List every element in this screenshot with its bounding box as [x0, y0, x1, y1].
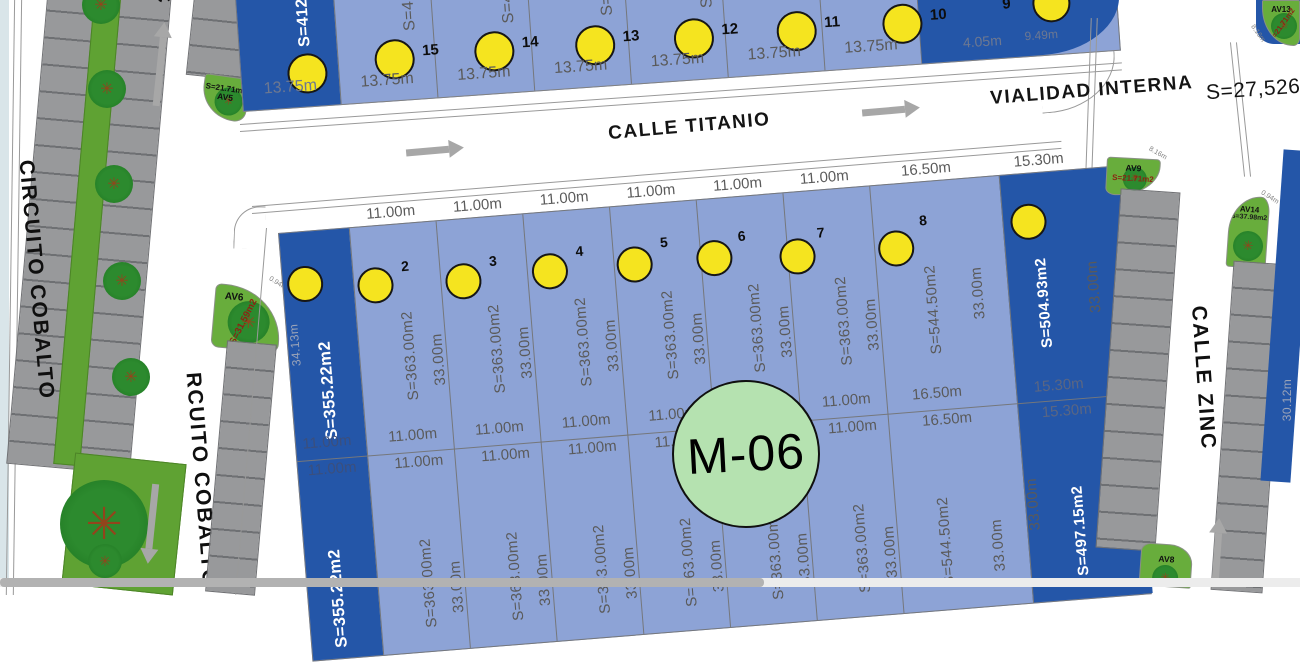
tree-icon: ✳	[88, 544, 122, 578]
lot-depth-label: 33.00m	[988, 518, 1009, 572]
arrow-right-icon	[405, 139, 464, 162]
vialidad-area-label: S=27,526	[1205, 75, 1300, 106]
mid-width-label: 11.00m	[551, 410, 622, 433]
lot-number: 15	[422, 41, 440, 59]
lot-width-label: 13.75m	[739, 42, 810, 65]
av8-label: AV8	[1141, 553, 1192, 566]
lot-area-label: S=363.00m2	[485, 304, 509, 395]
lot-area-label: S=363.00m2	[677, 517, 701, 608]
lot-number: 5	[659, 234, 668, 251]
lot-area-label: S=363.00m2	[590, 524, 614, 615]
lot-width-label: 13.75m	[835, 36, 906, 59]
lot-area-label: S=363.00m2	[503, 531, 527, 622]
lot-area-label: S=363.00m2	[398, 311, 422, 402]
lot9-edge-label: 9.49m	[1024, 27, 1058, 43]
lot-area-label: S=41	[399, 0, 420, 31]
lot-number: 14	[521, 33, 539, 51]
lot-width-label: 13.75m	[352, 69, 423, 92]
lot-area-label: S=	[598, 0, 617, 16]
lot-number: 13	[622, 27, 640, 45]
av9-area-label: S=21.71m2	[1107, 172, 1159, 184]
street-label-calle-titanio: CALLE TITANIO	[607, 109, 771, 145]
lot-area-label: S=363.00m2	[832, 276, 856, 367]
lot-depth-label: 33.00m	[967, 266, 988, 320]
lot-area-label: S=412	[293, 0, 314, 47]
lot-area-label: S	[698, 0, 717, 8]
block-badge-label: M-06	[686, 422, 807, 486]
horizontal-scrollbar-thumb[interactable]	[0, 578, 764, 587]
parking-strip-circuito-east	[205, 340, 277, 595]
lot-number: 8	[918, 212, 927, 229]
mid-width-label: 11.00m	[464, 417, 535, 440]
tree-icon: ✳	[112, 358, 150, 396]
plan-canvas[interactable]: { "streets": { "circuito_cobalto": "CIRC…	[0, 0, 1300, 587]
vertical-road-east-curb-b	[1236, 42, 1251, 176]
lot-number: 4	[575, 243, 584, 260]
lot-marker-icon	[531, 252, 570, 291]
mid-width-label: 16.50m	[901, 382, 972, 405]
green-area-av14: ✳ AV14 S=37.98m2	[1226, 195, 1271, 270]
lot-number: 7	[816, 224, 825, 241]
lot-width-label: 13.75m	[545, 56, 616, 79]
lot-number: 3	[488, 253, 497, 270]
lot-area-label: S=544.50m2	[934, 496, 958, 587]
lot-number: 6	[737, 228, 746, 245]
lot-area-label: S=544.50m2	[921, 264, 945, 355]
lot-area-label: S=363.00m2	[658, 290, 682, 381]
lot-marker-icon	[877, 229, 916, 268]
lot-area-label: S=363.00m2	[572, 297, 596, 388]
arrow-right-icon	[861, 99, 920, 122]
av14-area-label: S=37.98m2	[1230, 213, 1268, 224]
tree-icon: ✳	[95, 165, 133, 203]
lot-width-label: 13.75m	[448, 63, 519, 86]
lot-number: 2	[400, 258, 409, 275]
lot-number: 10	[929, 6, 947, 24]
tree-icon: ✳	[103, 262, 141, 300]
far-right-lot-side-label: 30.12m	[1280, 379, 1294, 421]
lot-number: 12	[721, 20, 739, 38]
lot-width-label: 13.75m	[642, 49, 713, 72]
lot-marker-icon	[356, 266, 395, 305]
tree-icon: ✳	[1232, 230, 1264, 262]
mid-width-label: 11.00m	[377, 424, 448, 447]
green-area-av13: ✳ AV13 S=21.71m2	[1262, 0, 1300, 46]
top-block: S=412 13.75m S=41 15 13.75m S=4 14 13.75…	[225, 0, 1121, 112]
block-badge-m06: M-06	[672, 380, 820, 528]
lot-number: 9	[1002, 0, 1012, 13]
lot9-edge-label: 4.05m	[962, 32, 1002, 51]
street-label-calle-zinc: CALLE ZINC	[1186, 305, 1220, 451]
lot-number: 11	[824, 13, 841, 31]
lot-marker-icon	[778, 237, 817, 276]
m06-curb-left-curve	[233, 205, 265, 249]
lot-marker-icon	[444, 262, 483, 301]
mid-width-label: 11.00m	[811, 389, 882, 412]
lot-area-label: S=363.00m2	[745, 283, 769, 374]
lot-area-label: S=4	[498, 0, 518, 24]
tree-icon: ✳	[88, 70, 126, 108]
lot-marker-icon	[615, 245, 654, 284]
